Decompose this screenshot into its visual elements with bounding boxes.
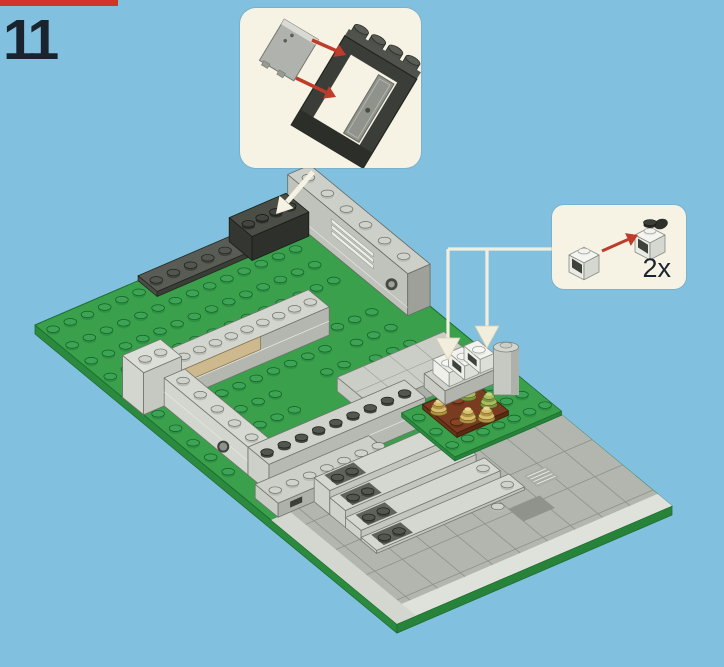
instruction-page: 11 2x — [0, 0, 724, 667]
headlight-brick-part — [569, 247, 599, 280]
quantity-label: 2x — [642, 253, 671, 284]
parts-quantity-callout: 2x — [552, 205, 686, 289]
round-column — [494, 342, 520, 395]
callout-guide-lines — [436, 249, 552, 360]
window-frame-part-illustration — [240, 8, 421, 168]
window-assembly-callout — [240, 8, 421, 168]
red-arrow-icon — [602, 233, 638, 251]
glass-pane-part — [258, 19, 319, 83]
